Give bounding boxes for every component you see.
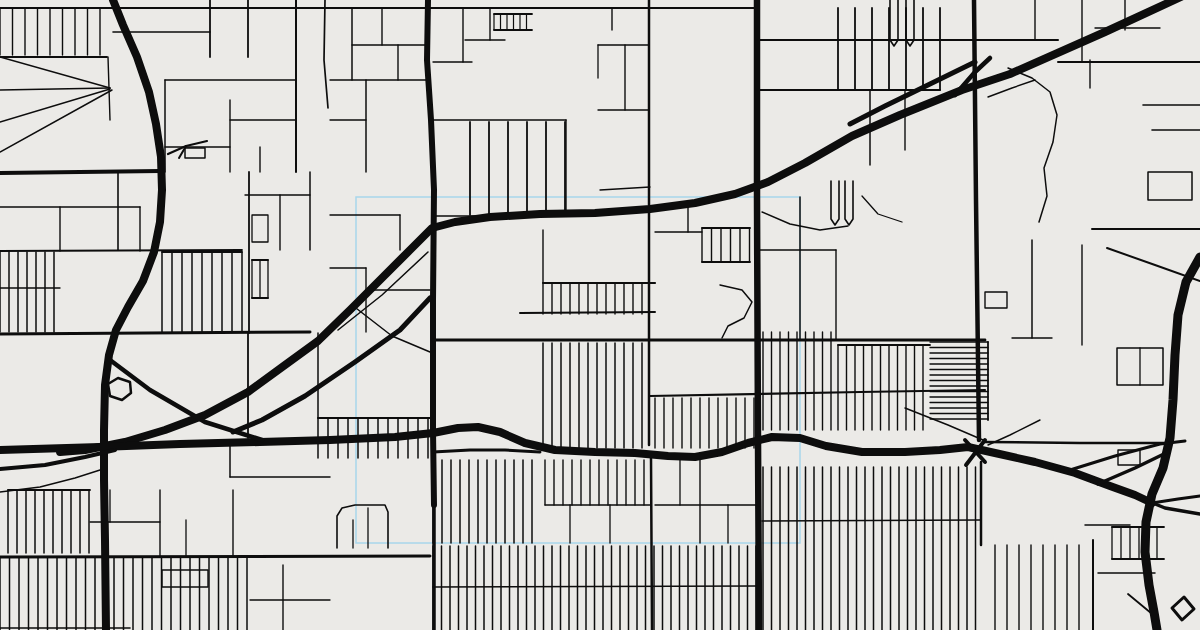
street-map-canvas <box>0 0 1200 630</box>
map-background <box>0 0 1200 630</box>
map-viewport[interactable] <box>0 0 1200 630</box>
